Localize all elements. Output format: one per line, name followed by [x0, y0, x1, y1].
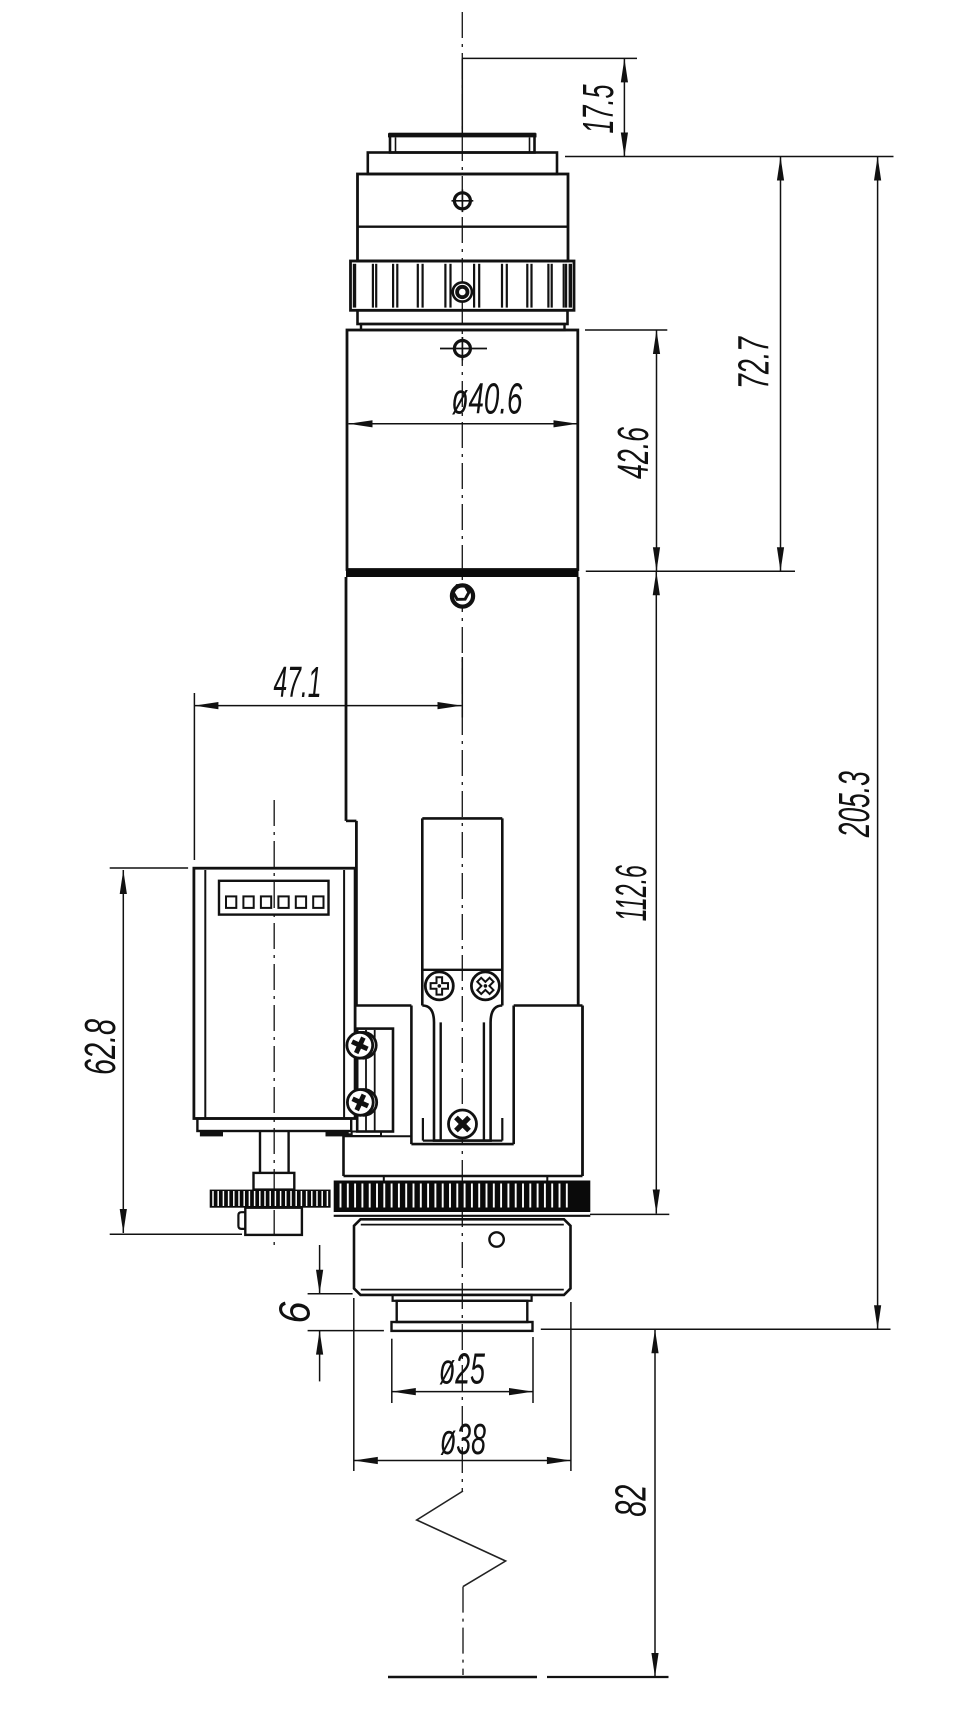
svg-text:72.7: 72.7 [730, 336, 779, 389]
svg-text:82: 82 [607, 1485, 656, 1517]
svg-text:17.5: 17.5 [574, 84, 623, 133]
svg-text:ø40.6: ø40.6 [452, 375, 523, 424]
svg-text:112.6: 112.6 [607, 865, 656, 921]
svg-text:47.1: 47.1 [274, 658, 322, 707]
svg-text:ø38: ø38 [440, 1415, 486, 1464]
svg-text:62.8: 62.8 [76, 1019, 125, 1075]
svg-text:42.6: 42.6 [609, 427, 658, 479]
svg-text:ø25: ø25 [439, 1345, 485, 1394]
svg-text:205.3: 205.3 [830, 771, 879, 838]
svg-text:6: 6 [271, 1301, 320, 1323]
